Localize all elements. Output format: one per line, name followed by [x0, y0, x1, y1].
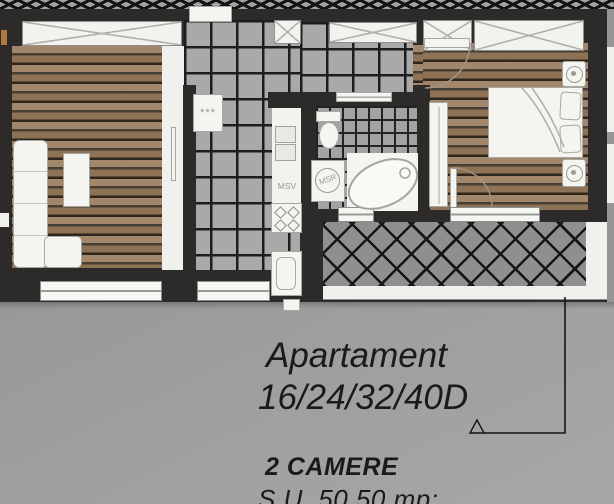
balcony-door-leaf	[450, 168, 457, 208]
rooms-count: 2 CAMERE	[265, 453, 398, 482]
bedroom-wardrobe-large	[474, 20, 584, 51]
stove-burner	[274, 206, 287, 219]
nightstand-bottom	[562, 159, 586, 187]
fridge	[271, 251, 302, 296]
apartment-name: Apartament	[266, 336, 447, 376]
bathroom-balcony-window	[338, 207, 374, 222]
hall-wardrobe	[329, 22, 417, 43]
balcony-door-sill	[450, 207, 540, 222]
plan-drop-shadow	[0, 302, 614, 309]
kitchen-sink-bottom	[275, 144, 296, 161]
leader-arrowhead	[470, 420, 484, 433]
left-wall-vent	[0, 213, 9, 227]
hall-small-cabinet	[274, 20, 301, 44]
stove-burner	[287, 206, 300, 219]
balcony-floor	[323, 222, 586, 286]
adjacent-window-bottom	[607, 144, 614, 203]
exterior-wall-hatching	[0, 0, 614, 9]
pillow-top	[559, 91, 581, 120]
coat-hooks-label: ***	[194, 108, 222, 119]
stove	[271, 203, 302, 233]
nightstand-top	[562, 61, 586, 87]
bedroom-dresser	[429, 102, 448, 207]
dresser-line	[438, 107, 440, 204]
fridge-inner	[276, 257, 296, 290]
apartment-numbers: 16/24/32/40D	[258, 378, 468, 418]
bedroom-door-leaf	[424, 38, 470, 48]
bathroom-door	[336, 92, 392, 102]
balcony-railing-bottom	[323, 286, 607, 300]
entrance-door	[189, 6, 232, 22]
living-wardrobe	[22, 21, 182, 46]
dishwasher-label: MSV	[273, 182, 301, 191]
tv-unit	[171, 127, 176, 181]
sofa-chaise	[44, 236, 82, 268]
kitchen-corner-wall	[268, 92, 302, 108]
bedroom-door-threshold	[413, 45, 423, 85]
usable-area: S.U. 50,50 mp:	[258, 484, 438, 504]
kitchen-sink-top	[275, 126, 296, 143]
toilet-bowl	[319, 122, 339, 149]
floor-plan-screenshot: *** MSV MSR	[0, 0, 614, 504]
bathtub-platform	[347, 153, 418, 211]
leader-line	[484, 297, 565, 433]
stove-burner	[287, 219, 300, 232]
toilet-tank	[316, 111, 341, 122]
living-room-window	[40, 281, 162, 301]
lamp-dot	[571, 170, 576, 175]
pillow-bottom	[559, 124, 581, 153]
entry-coat-cabinet: ***	[193, 94, 223, 132]
exterior-unit	[283, 299, 300, 311]
coffee-table	[63, 153, 90, 207]
lamp-dot	[571, 71, 576, 76]
stove-burner	[274, 219, 287, 232]
adjacent-window-top	[607, 47, 614, 132]
washing-machine: MSR	[311, 160, 345, 202]
kitchen-window	[197, 281, 270, 301]
balcony-railing-right	[586, 222, 607, 286]
sofa-main	[13, 140, 48, 268]
kitchen-counter	[272, 108, 301, 214]
radiator-mark	[1, 30, 7, 45]
